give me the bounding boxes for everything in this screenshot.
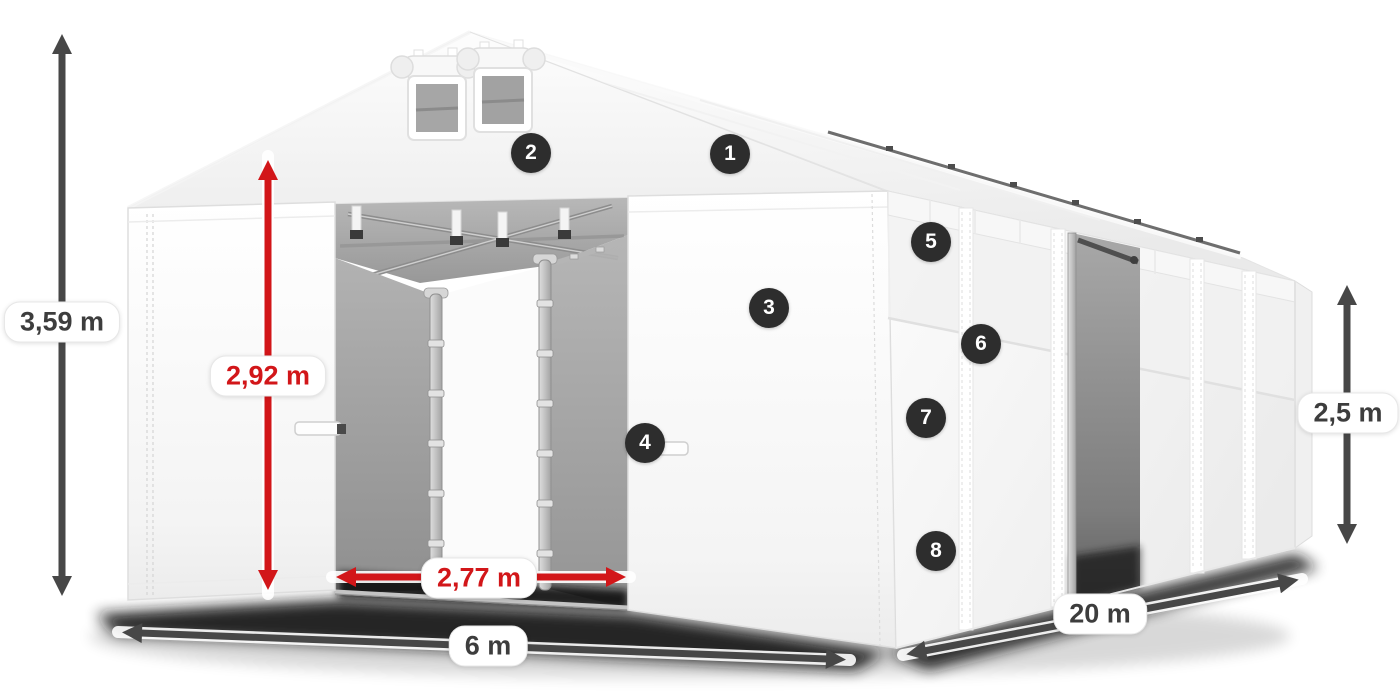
callout-badge-1[interactable]: 1: [710, 134, 750, 174]
tent-dimension-diagram: 3,59 m 2,92 m 2,77 m 6 m 20 m 2,5 m 1 2 …: [0, 0, 1400, 700]
tent-illustration: [0, 0, 1400, 700]
callout-badge-5[interactable]: 5: [911, 222, 951, 262]
dimension-label-door-width: 2,77 m: [421, 557, 537, 598]
callout-badge-2[interactable]: 2: [511, 133, 551, 173]
callout-badge-4[interactable]: 4: [625, 423, 665, 463]
callout-badge-6[interactable]: 6: [961, 324, 1001, 364]
callout-badge-7[interactable]: 7: [906, 398, 946, 438]
dimension-label-total-height: 3,59 m: [4, 301, 120, 342]
callout-badge-8[interactable]: 8: [916, 531, 956, 571]
side-doorway: [1068, 233, 1140, 605]
interior-wall-right: [545, 235, 628, 608]
front-interior: [335, 197, 630, 610]
interior-wall-left: [335, 258, 436, 592]
interior-gap: [436, 266, 545, 590]
callout-badge-3[interactable]: 3: [749, 288, 789, 328]
dimension-label-front-width: 6 m: [449, 625, 528, 666]
front-left-door-panel: [128, 202, 346, 600]
door-handle-left: [295, 422, 346, 435]
front-right-door-panel: [628, 191, 896, 648]
dimension-label-door-height: 2,92 m: [210, 355, 326, 396]
dimension-label-side-length: 20 m: [1053, 593, 1147, 634]
dimension-label-side-height: 2,5 m: [1297, 392, 1398, 433]
